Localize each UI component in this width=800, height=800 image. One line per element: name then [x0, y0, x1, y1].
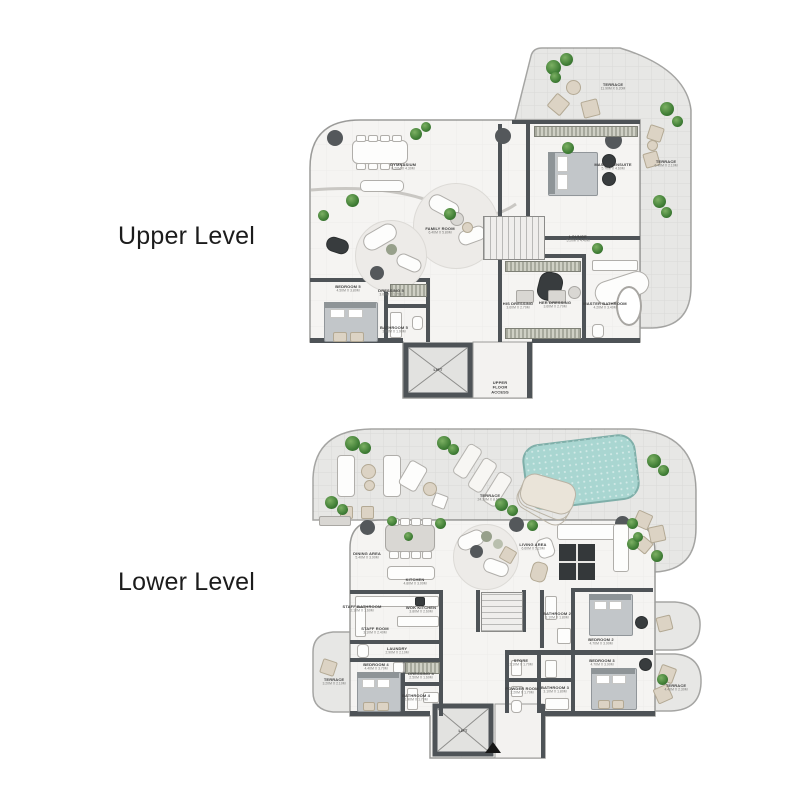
floorplan-page: { "page": {"background": "#ffffff"}, "co… [0, 0, 800, 800]
column [360, 520, 375, 535]
wall [498, 254, 502, 342]
room-label-terrace-right: TERRACE4.40M X 2.30M [664, 684, 687, 693]
chair [380, 135, 390, 142]
room-label-terrace-e: TERRACE6.40M X 2.10M [654, 160, 677, 169]
wall [476, 590, 480, 632]
chair [368, 135, 378, 142]
room-dims: 2.10M X 1.60M [343, 609, 382, 613]
chair [400, 551, 410, 559]
armchair [602, 172, 616, 186]
room-dims: 4.40M X 2.30M [664, 688, 687, 692]
room-label-terrace-ne: TERRACE11.90M X 6.20M [601, 83, 626, 92]
wall [541, 678, 571, 682]
room-label-bedroom4: BEDROOM 44.40M X 3.70M [363, 663, 389, 672]
wall [545, 711, 655, 716]
room-dims: 4.80M X 3.00M [403, 582, 426, 586]
pillow [377, 679, 390, 688]
chair [411, 518, 421, 526]
pillow [348, 309, 363, 318]
room-dims: 5.40M X 3.90M [353, 556, 381, 560]
pillow [362, 679, 375, 688]
chair [400, 518, 410, 526]
wall [401, 682, 441, 686]
room-dims: 6.40M X 5.80M [425, 231, 454, 235]
plant [627, 518, 638, 529]
wall [439, 590, 443, 716]
master-bed [548, 152, 598, 196]
double-vanity [592, 260, 638, 271]
room-label-staff-room: STAFF ROOM3.10M X 2.40M [361, 627, 389, 636]
pillow [557, 156, 568, 172]
room-dims: 3.00M X 1.90M [380, 330, 408, 334]
bathtub-small [545, 698, 569, 710]
room-label-dining: DINING AREA5.40M X 3.90M [353, 552, 381, 561]
room-label-terrace: TERRACE24.30M X 8.60M [477, 494, 502, 503]
stairs [483, 216, 545, 260]
toilet [511, 700, 522, 713]
plant [507, 505, 518, 516]
room-dims: 3.80M X 2.60M [406, 610, 436, 614]
chair [392, 135, 402, 142]
room-dims: 11.90M X 6.20M [601, 87, 626, 91]
pillow [609, 601, 622, 610]
wall [573, 588, 653, 592]
armchair [639, 658, 652, 671]
bench-cushion [612, 700, 624, 709]
side-table [568, 286, 581, 299]
room-label-bathroom2: BATHROOM 23.10M X 1.80M [543, 612, 571, 621]
plant [550, 72, 561, 83]
chair [389, 551, 399, 559]
plant [592, 243, 603, 254]
wall [388, 304, 428, 308]
ottoman [493, 539, 503, 549]
toilet [357, 644, 369, 658]
wall [505, 655, 509, 713]
room-label-gymnasium: GYMNASIUM8.20M X 4.30M [390, 163, 416, 172]
room-dims: 3.10M X 2.40M [361, 631, 389, 635]
room-label-bathroom5: BATHROOM 53.00M X 1.90M [380, 326, 408, 335]
bench-cushion [363, 702, 375, 711]
plant [527, 520, 538, 531]
room-dims: 2.10M X 1.70M [509, 663, 532, 667]
plant [345, 436, 360, 451]
room-dims: 2.90M X 1.70M [402, 698, 430, 702]
vanity [545, 660, 557, 678]
room-label-bedroom5: BEDROOM 54.50M X 3.80M [335, 285, 361, 294]
entrance-arrow [485, 742, 501, 753]
terrace-sofa [337, 455, 355, 497]
sofa [613, 524, 629, 572]
room-label-store: STORE2.10M X 1.70M [509, 659, 532, 668]
upper-level-title: Upper Level [118, 222, 255, 251]
plant [448, 444, 459, 455]
headboard [324, 302, 376, 308]
room-label-her-dressing: HER DRESSING3.60M X 2.70M [539, 301, 571, 310]
plant [658, 465, 669, 476]
room-dims: 2.20M X 1.70M [505, 691, 538, 695]
shower [557, 628, 571, 644]
bench-cushion [333, 332, 347, 342]
bench-cushion [598, 700, 610, 709]
plant [410, 128, 422, 140]
console-table [360, 180, 404, 192]
terrace-table [364, 480, 375, 491]
chair [422, 551, 432, 559]
ottoman [481, 531, 492, 542]
plant [404, 532, 413, 541]
room-label-dressing5: DRESSING 53.00M X 1.70M [378, 289, 404, 298]
plant [651, 550, 663, 562]
wardrobe [534, 126, 638, 137]
room-dims: 6.40M X 2.10M [654, 164, 677, 168]
room-label-access: UPPER FLOOR ACCESS [486, 381, 515, 395]
chair [368, 163, 378, 170]
room-label-family-room: FAMILY ROOM6.40M X 5.80M [425, 227, 454, 236]
stove [415, 597, 425, 606]
wall [509, 678, 537, 682]
plant [661, 207, 672, 218]
wardrobe [505, 261, 581, 272]
room-dims: 3.10M X 1.80M [541, 690, 569, 694]
plant [325, 496, 338, 509]
armchair [635, 616, 648, 629]
terrace-table [566, 80, 581, 95]
room-dims: 4.20M X 3.40M [583, 306, 626, 310]
coffee-tables [559, 544, 595, 580]
room-dims: 2.90M X 2.10M [385, 651, 408, 655]
ottoman [386, 244, 397, 255]
room-label-lift: LIFT [433, 368, 442, 373]
toilet [592, 324, 604, 338]
room-dims: 4.50M X 3.80M [335, 289, 361, 293]
plant [562, 142, 574, 154]
plant [672, 116, 683, 127]
room-label-master-bathroom: MASTER BATHROOM4.20M X 3.40M [583, 302, 626, 311]
room-label-living: LIVING AREA6.60M X 5.20M [519, 543, 546, 552]
room-dims: 5.70M X 4.60M [594, 167, 631, 171]
room-label-wok-kitchen: WOK KITCHEN3.80M X 2.60M [406, 606, 436, 615]
chair [411, 551, 421, 559]
room-label-master-ensuite: MASTER ENSUITE5.70M X 4.60M [594, 163, 631, 172]
room-dims: 8.20M X 4.30M [390, 167, 416, 171]
kitchen-counter [397, 616, 439, 627]
room-label-dressing4: DRESSING 42.50M X 1.60M [408, 672, 434, 681]
plant [421, 122, 431, 132]
terrace-table [361, 464, 376, 479]
plant [653, 195, 666, 208]
room-label-bathroom3: BATHROOM 33.10M X 1.80M [541, 686, 569, 695]
pillow [594, 601, 607, 610]
room-name: LIFT [458, 729, 467, 734]
room-dims: 2.50M X 1.60M [408, 676, 434, 680]
room-dims: 3.10M X 1.80M [543, 616, 571, 620]
room-label-bedroom3: BEDROOM 34.70M X 3.90M [589, 659, 615, 668]
plant [318, 210, 329, 221]
room-name: LIFT [433, 368, 442, 373]
toilet [412, 316, 423, 330]
room-dims: 6.60M X 5.20M [519, 547, 546, 551]
wall [571, 655, 575, 713]
headboard [357, 672, 399, 678]
room-label-laundry: LAUNDRY2.90M X 2.10M [385, 647, 408, 656]
bench [319, 516, 351, 526]
pillow [557, 174, 568, 190]
headboard [589, 594, 631, 600]
room-dims: 4.70M X 3.90M [588, 642, 614, 646]
pillow [596, 675, 610, 684]
wall [582, 254, 586, 342]
chair [380, 163, 390, 170]
room-label-his-dressing: HIS DRESSING3.60M X 2.70M [503, 302, 533, 311]
plant [660, 102, 674, 116]
room-label-terrace-left: TERRACE3.20M X 2.10M [322, 678, 345, 687]
wall [541, 704, 545, 758]
plant [346, 194, 359, 207]
room-label-bathroom4: BATHROOM 42.90M X 1.70M [402, 694, 430, 703]
wall [350, 590, 442, 594]
pillow [330, 309, 345, 318]
headboard [591, 668, 635, 674]
room-dims: 4.40M X 3.70M [363, 667, 389, 671]
bench-cushion [377, 702, 389, 711]
headboard [548, 152, 555, 194]
room-label-kitchen: KITCHEN4.80M X 3.00M [403, 578, 426, 587]
room-label-powder: POWDER ROOM2.20M X 1.70M [505, 687, 538, 696]
lower-floor-plan: TERRACE24.30M X 8.60M DINING AREA5.40M X… [305, 420, 705, 765]
wall [527, 342, 532, 398]
plant [387, 516, 397, 526]
column [495, 128, 511, 144]
pillow [612, 675, 626, 684]
plant [633, 532, 643, 542]
room-label-bedroom2: BEDROOM 24.70M X 3.90M [588, 638, 614, 647]
room-dims: 3.60M X 2.70M [503, 306, 533, 310]
coffee-table [370, 266, 384, 280]
column [509, 517, 524, 532]
stool [462, 222, 473, 233]
room-label-staff-bathroom: STAFF BATHROOM2.10M X 1.60M [343, 605, 382, 614]
upper-floor-plan: TERRACE11.90M X 6.20M GYMNASIUM8.20M X 4… [300, 40, 700, 408]
coffee-table [470, 545, 483, 558]
room-label-lift: LIFT [458, 729, 467, 734]
terrace-sofa [383, 455, 401, 497]
bench-cushion [350, 332, 364, 342]
stairs [481, 592, 523, 632]
room-label-lounge: LOUNGE5.20M X 4.40M [566, 235, 589, 244]
plant [359, 442, 371, 454]
chair [356, 135, 366, 142]
column [327, 130, 343, 146]
plant [435, 518, 446, 529]
room-dims: 4.70M X 3.90M [589, 663, 615, 667]
room-dims: 3.60M X 2.70M [539, 305, 571, 309]
terrace-table [647, 140, 658, 151]
stool [361, 506, 374, 519]
wardrobe [505, 328, 581, 339]
room-dims: 3.00M X 1.70M [378, 293, 404, 297]
gym-table [352, 140, 408, 164]
wall [512, 120, 640, 124]
room-dims: 24.30M X 8.60M [477, 498, 502, 502]
room-name: UPPER FLOOR ACCESS [486, 381, 515, 395]
wall [571, 588, 575, 652]
chair [422, 518, 432, 526]
room-dims: 5.20M X 4.40M [566, 239, 589, 243]
plant [560, 53, 573, 66]
plant [337, 504, 348, 515]
plant [444, 208, 456, 220]
lower-level-title: Lower Level [118, 568, 255, 597]
wall [505, 650, 653, 655]
chair [356, 163, 366, 170]
room-dims: 3.20M X 2.10M [322, 682, 345, 686]
